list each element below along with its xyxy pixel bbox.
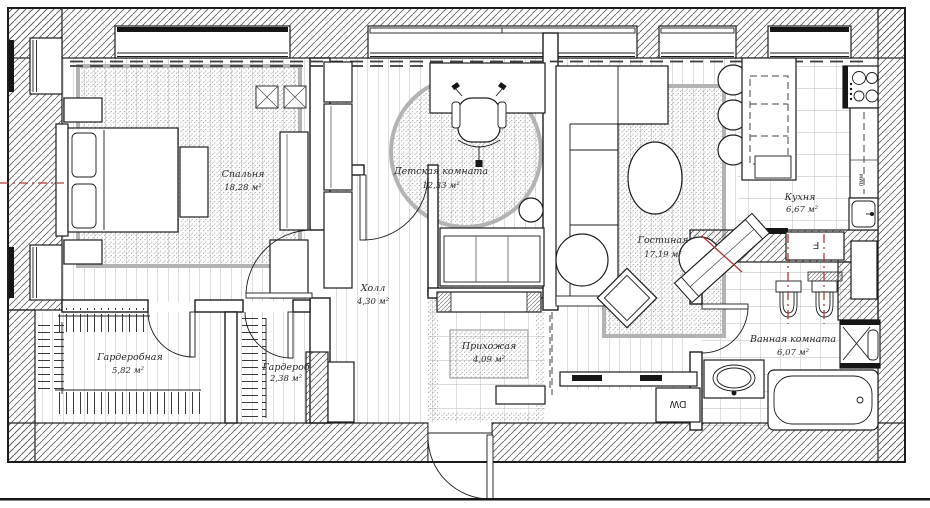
- walk-in-closet-area: 5,82 м²: [112, 366, 145, 376]
- wall-right: [878, 8, 905, 462]
- right-wall-niche: [851, 241, 877, 299]
- window-living: [659, 26, 736, 58]
- bathroom-shelf: [808, 272, 842, 281]
- dw-niche: DW: [656, 388, 700, 422]
- entry-area: 4,09 м²: [472, 355, 506, 365]
- kitchen-counter: пмм: [850, 108, 878, 198]
- dishwasher-label: DW: [669, 398, 686, 409]
- kids-room-label: Детская комната: [393, 166, 489, 177]
- kids-wardrobe: [324, 192, 352, 288]
- hall-area: 4,30 м²: [356, 297, 390, 307]
- hall-label: Холл: [360, 283, 386, 294]
- tv: [572, 375, 602, 381]
- entry-bench: [437, 292, 541, 312]
- window-bedroom: [115, 26, 290, 58]
- dressing-table: [270, 240, 308, 298]
- bedroom-area: 18,28 м²: [224, 183, 262, 193]
- sheet-border-line: [0, 498, 930, 501]
- kids-shelf: [324, 62, 352, 102]
- bathtub: [768, 370, 878, 430]
- wall-between-closets: [225, 312, 237, 423]
- wall-bedroom-closets-3: [293, 300, 310, 312]
- window-kitchen: [768, 26, 851, 58]
- entry-border-band: [428, 296, 438, 420]
- kids-room-area: 12,33 м²: [422, 181, 460, 191]
- vanity-sink: [704, 360, 764, 398]
- entry-border-band: [433, 412, 540, 421]
- faucet: [732, 391, 737, 396]
- kids-sofa: [440, 228, 544, 286]
- entry-label: Прихожая: [461, 341, 516, 352]
- round-pouf: [556, 234, 608, 286]
- closet-label: Гардероб: [261, 362, 309, 373]
- nightstand: [64, 240, 102, 264]
- floor-plan-drawing: пмм F: [0, 0, 930, 508]
- entry-doormat: [450, 330, 528, 378]
- kitchen-sink: [849, 198, 878, 230]
- hanger-rail-left: [38, 322, 64, 394]
- wall-bedroom-closets-2: [195, 300, 243, 312]
- hall-cabinet: [328, 362, 354, 422]
- kids-cabinet: [324, 104, 352, 190]
- wall-bottom-left: [8, 423, 428, 462]
- floor-plan-canvas: пмм F: [0, 0, 930, 508]
- fridge-niche: F: [786, 232, 844, 260]
- washing-machine: [840, 320, 880, 368]
- hanger-rail-top: [58, 308, 150, 332]
- closet-area: 2,38 м²: [269, 374, 303, 384]
- tv-console: [560, 372, 697, 386]
- stool: [519, 198, 543, 222]
- coffee-table: [628, 142, 682, 214]
- stove: [843, 66, 878, 108]
- entry-opening: [428, 423, 492, 462]
- living-room-label: Гостиная: [637, 235, 689, 246]
- shelf-unit: [256, 86, 278, 108]
- dishwasher-ru-label: пмм: [858, 173, 865, 186]
- fridge-label: F: [813, 239, 819, 250]
- tall-wardrobe: [280, 132, 308, 230]
- hanger-rail-bottom: [55, 388, 201, 418]
- bathroom-area: 6,07 м²: [777, 348, 810, 358]
- window-kids-living: [368, 26, 637, 58]
- living-room-area: 17,19 м²: [644, 250, 682, 260]
- pillow: [72, 184, 96, 228]
- walk-in-closet-label: Гардеробная: [96, 352, 163, 363]
- nightstand: [64, 98, 102, 122]
- bed-bench: [180, 147, 208, 217]
- bedroom-label: Спальня: [222, 169, 265, 180]
- pillow: [72, 133, 96, 177]
- bathroom-label: Ванная комната: [749, 334, 836, 345]
- kitchen-area: 6,67 м²: [786, 205, 819, 215]
- shelf-unit: [284, 86, 306, 108]
- bar-table: [742, 58, 796, 180]
- bed-headboard: [56, 124, 68, 236]
- kitchen-label: Кухня: [784, 192, 816, 203]
- shoe-cabinet: [496, 386, 545, 404]
